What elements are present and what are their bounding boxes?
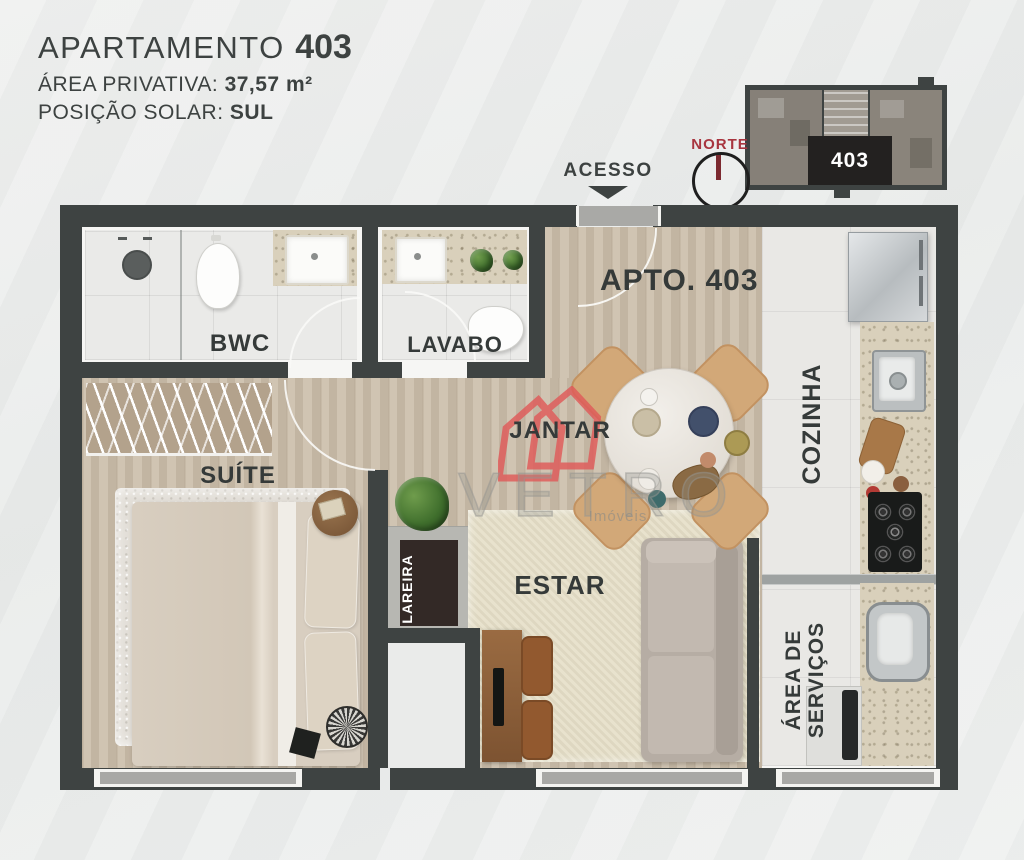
room-label-jantar: JANTAR [490, 417, 630, 445]
access-label: ACESSO [548, 160, 668, 182]
room-label-lavabo: LAVABO [385, 332, 525, 358]
access-arrow-icon [588, 186, 628, 199]
room-label-estar: ESTAR [490, 570, 630, 601]
room-label-lareira: LAREIRA [399, 539, 417, 639]
floorplan-page: APARTAMENTO 403 ÁREA PRIVATIVA: 37,57 m²… [0, 0, 1024, 860]
room-label-suite: SUÍTE [168, 462, 308, 490]
room-label-servicos-line2: SERVIÇOS [805, 605, 828, 755]
unit-title-label: APTO. 403 [600, 264, 740, 298]
room-label-servicos-line1: ÁREA DE [782, 605, 805, 755]
vetro-watermark-sub: Imóveis [548, 508, 688, 525]
room-label-cozinha: COZINHA [798, 354, 826, 494]
room-label-servicos: ÁREA DE SERVIÇOS [782, 605, 830, 755]
room-label-bwc: BWC [170, 330, 310, 358]
